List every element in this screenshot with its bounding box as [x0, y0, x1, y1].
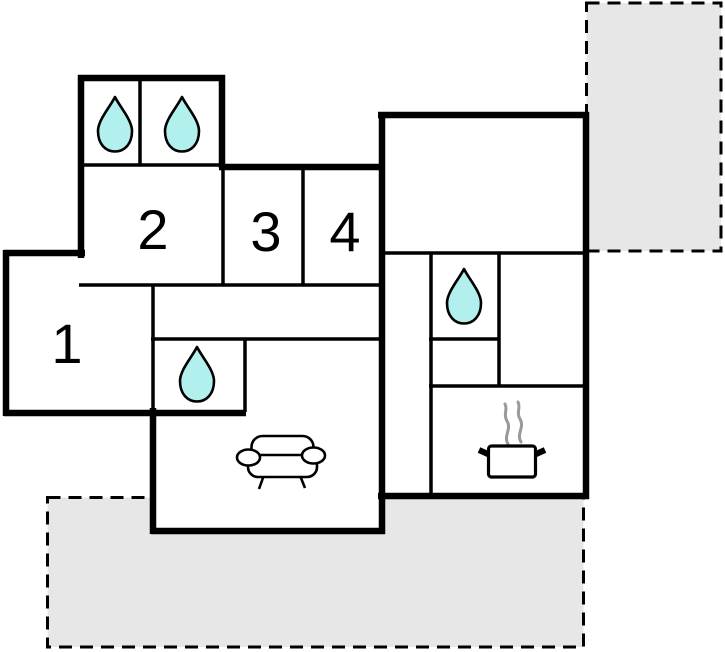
sofa-armrest	[302, 448, 325, 464]
room-label-4: 4	[329, 200, 360, 263]
room-label-1: 1	[51, 312, 82, 375]
room-label-3: 3	[250, 200, 281, 263]
living-hall-floor	[151, 284, 384, 534]
floor-plan: 1234	[0, 0, 725, 652]
terrace-top-right	[587, 3, 722, 251]
floor-plan-canvas: 1234	[0, 0, 725, 652]
pot-body	[489, 446, 536, 477]
floor-plan-svg: 1234	[0, 0, 725, 652]
right-wing-floor	[378, 112, 589, 498]
room-label-2: 2	[137, 198, 168, 261]
sofa-armrest	[237, 450, 260, 466]
